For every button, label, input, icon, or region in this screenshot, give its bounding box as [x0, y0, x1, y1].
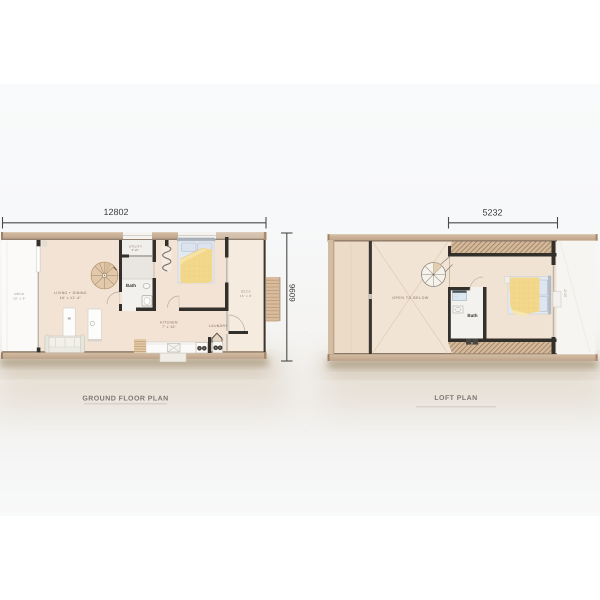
svg-text:LAUNDRY: LAUNDRY: [209, 324, 228, 328]
svg-text:LIVING + DINING: LIVING + DINING: [54, 291, 87, 295]
svg-text:LOFT PLAN: LOFT PLAN: [434, 395, 477, 402]
svg-text:16' x 6': 16' x 6': [13, 296, 26, 300]
svg-text:20'-0": 20'-0": [564, 288, 568, 297]
svg-text:7' x 16': 7' x 16': [162, 325, 176, 329]
svg-text:DECK: DECK: [241, 290, 252, 294]
svg-text:6096: 6096: [288, 283, 297, 301]
svg-text:Bath: Bath: [126, 283, 136, 288]
svg-text:DECK: DECK: [14, 292, 25, 296]
svg-text:Bath: Bath: [467, 313, 477, 318]
svg-text:KITCHEN: KITCHEN: [160, 321, 178, 325]
svg-text:5232: 5232: [482, 208, 502, 218]
svg-text:GROUND FLOOR PLAN: GROUND FLOOR PLAN: [82, 395, 168, 402]
svg-text:12802: 12802: [103, 207, 128, 217]
svg-text:16' x 12'-4": 16' x 12'-4": [60, 296, 82, 300]
svg-text:16' x 8': 16' x 8': [240, 294, 253, 298]
svg-text:6'x5': 6'x5': [132, 248, 140, 252]
svg-text:OPEN TO BELOW: OPEN TO BELOW: [392, 296, 429, 300]
